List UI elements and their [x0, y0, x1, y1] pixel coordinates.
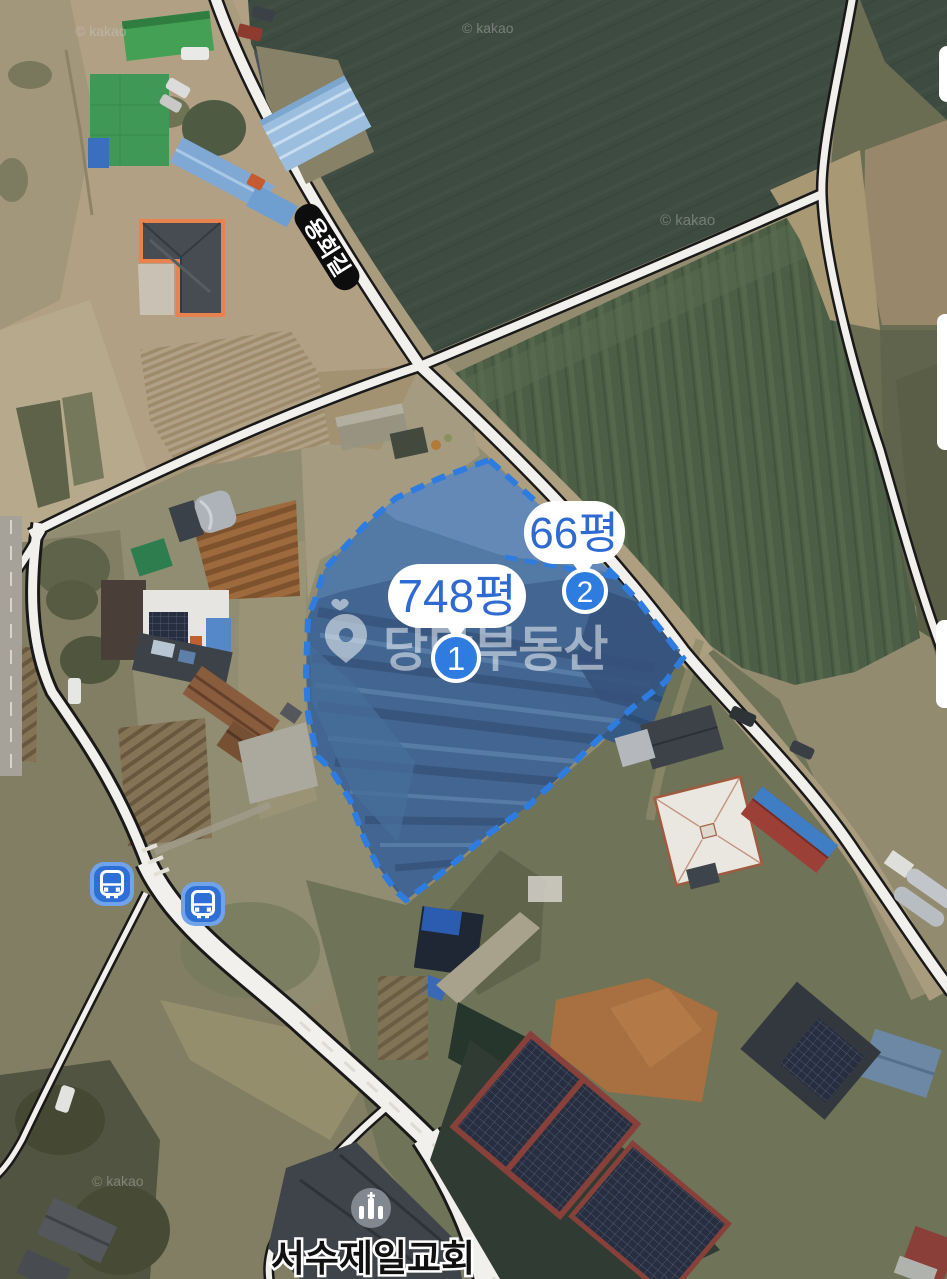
svg-text:© kakao: © kakao — [462, 20, 514, 36]
svg-text:© kakao: © kakao — [92, 1173, 144, 1189]
svg-text:서수제일교회: 서수제일교회 — [271, 1238, 475, 1279]
svg-text:© kakao: © kakao — [660, 212, 715, 229]
svg-text:당당부동산: 당당부동산 — [383, 623, 608, 677]
svg-text:© kakao: © kakao — [75, 23, 127, 39]
svg-text:1: 1 — [447, 640, 465, 677]
svg-text:2: 2 — [577, 576, 594, 609]
svg-text:748평: 748평 — [397, 570, 516, 622]
svg-text:66평: 66평 — [529, 509, 618, 558]
